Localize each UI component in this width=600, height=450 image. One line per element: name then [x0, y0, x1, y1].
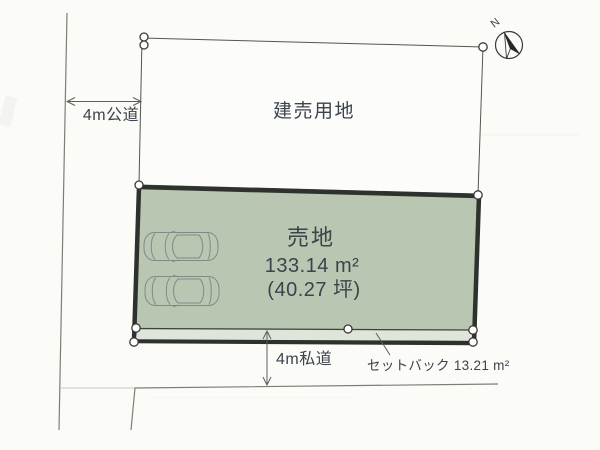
- north-label: N: [489, 16, 503, 30]
- boundary-point: [130, 338, 138, 346]
- compass-north-icon: N: [489, 16, 523, 59]
- bottom-road-label: 4m私道: [276, 352, 332, 369]
- boundary-point: [469, 338, 477, 346]
- boundary-point: [135, 181, 143, 189]
- boundary-point: [479, 43, 487, 51]
- sale-lot-area-sqm: 133.14 m²: [265, 256, 360, 277]
- boundary-point: [132, 324, 140, 332]
- setback-strip: [136, 330, 472, 341]
- boundary-point: [474, 191, 482, 199]
- bottom-road-line: [131, 384, 498, 430]
- boundary-point: [140, 41, 148, 49]
- land-plot-diagram: N 建売用地 売地 133.14 m² (40.27 坪) 4m公道 4m私道 …: [0, 0, 600, 450]
- left-road-label: 4m公道: [83, 108, 139, 125]
- left-road-dimension-arrow: [67, 98, 141, 106]
- setback-label: セットバック 13.21 m²: [367, 359, 510, 373]
- left-road-line: [59, 13, 67, 430]
- upper-lot-label: 建売用地: [273, 102, 355, 122]
- sale-lot-area-tsubo: (40.27 坪): [267, 280, 360, 301]
- boundary-point: [344, 325, 352, 333]
- boundary-point: [469, 326, 477, 334]
- sale-lot-label: 売地: [287, 226, 335, 249]
- boundary-point: [140, 33, 148, 41]
